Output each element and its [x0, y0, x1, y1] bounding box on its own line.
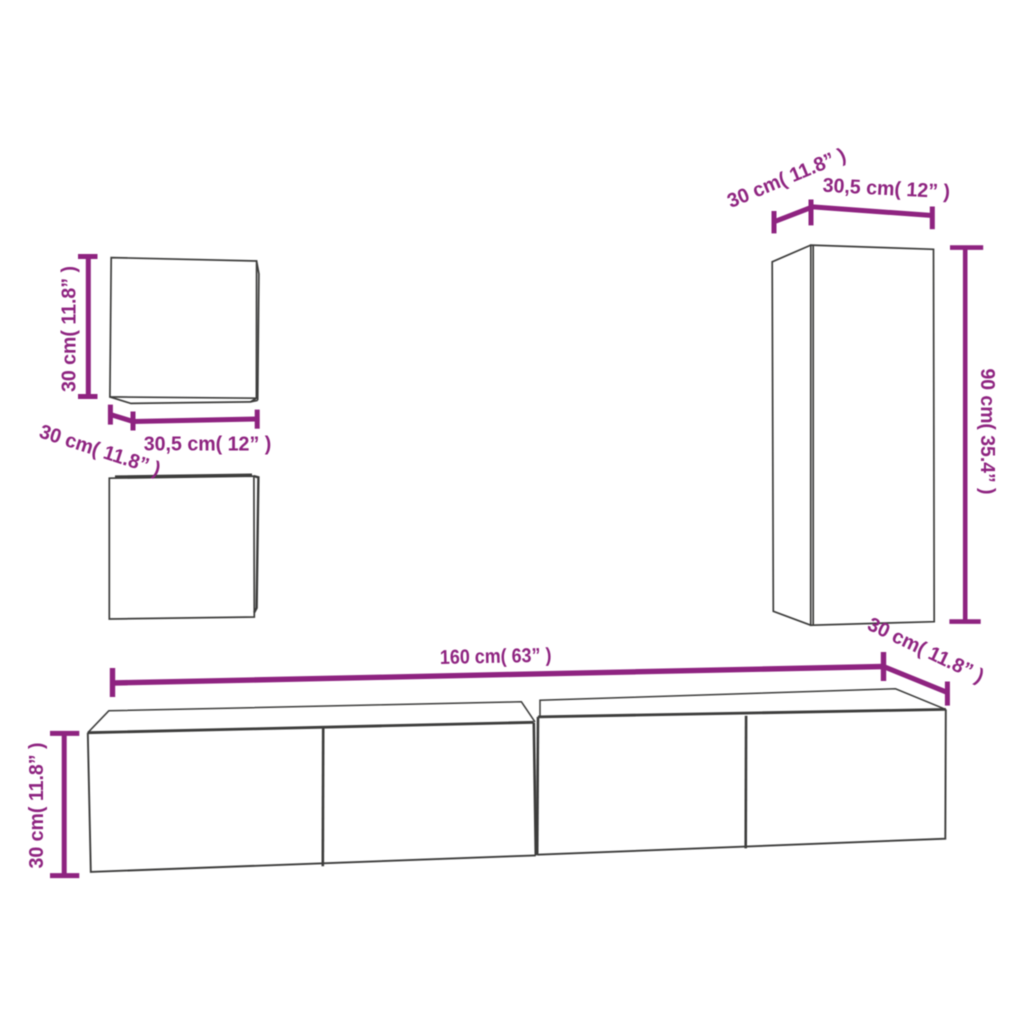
svg-text:30 cm( 11.8” ): 30 cm( 11.8” ) [59, 266, 81, 392]
svg-text:30,5 cm( 12” ): 30,5 cm( 12” ) [144, 434, 272, 456]
svg-text:160 cm( 63” ): 160 cm( 63” ) [440, 645, 552, 669]
svg-text:30,5 cm( 12” ): 30,5 cm( 12” ) [822, 175, 950, 204]
svg-text:30 cm( 11.8” ): 30 cm( 11.8” ) [26, 743, 48, 869]
svg-text:90 cm( 35.4” ): 90 cm( 35.4” ) [976, 369, 998, 495]
